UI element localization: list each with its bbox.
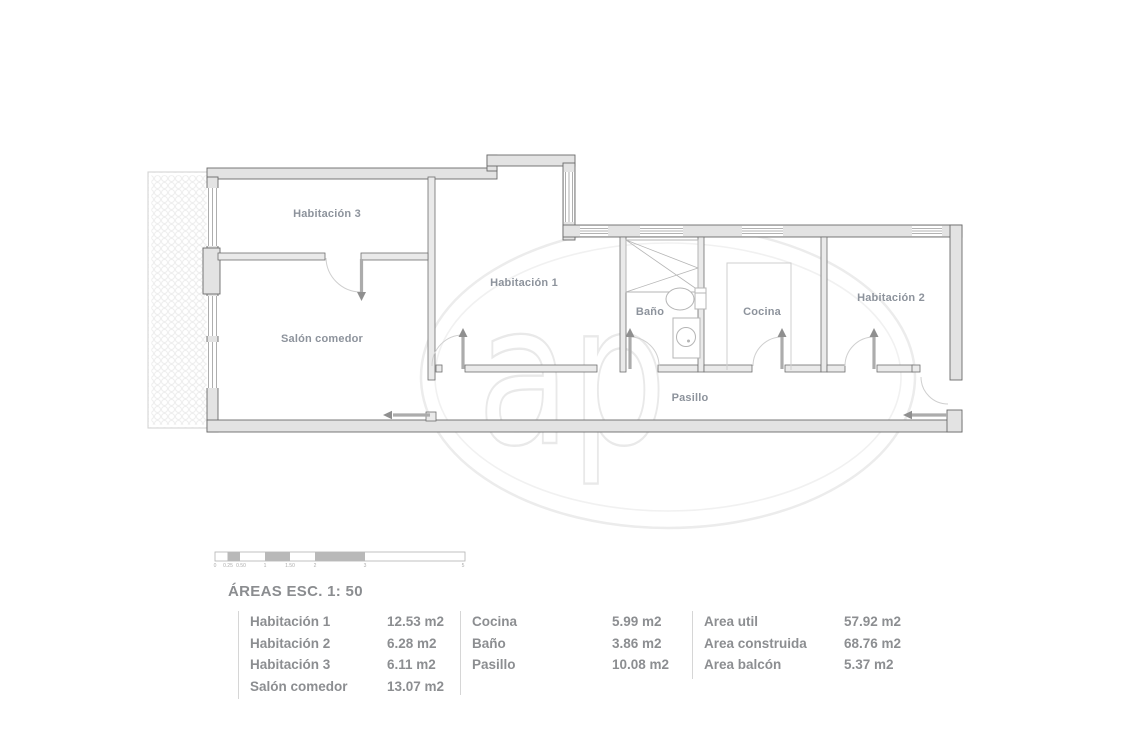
- area-name: Pasillo: [472, 657, 612, 672]
- area-name: Area construida: [704, 636, 844, 651]
- scale-tick: 0: [214, 563, 217, 569]
- room-label-salon-comedor: Salón comedor: [281, 333, 363, 345]
- scale-bar: [215, 552, 465, 561]
- areas-column-totals: Area util 57.92 m2 Area construida 68.76…: [692, 611, 901, 679]
- balcony-hatch: [148, 172, 210, 428]
- area-value: 3.86 m2: [612, 636, 662, 651]
- area-value: 12.53 m2: [387, 614, 444, 629]
- areas-column-rooms: Habitación 1 12.53 m2 Habitación 2 6.28 …: [238, 611, 444, 699]
- area-value: 6.11 m2: [387, 657, 436, 672]
- room-label-cocina: Cocina: [743, 306, 781, 318]
- room-label-habitacion-3: Habitación 3: [293, 208, 361, 220]
- room-label-bano: Baño: [636, 306, 664, 318]
- area-row: Salón comedor 13.07 m2: [250, 676, 444, 698]
- scale-tick: 1: [264, 563, 267, 569]
- room-label-pasillo: Pasillo: [672, 392, 709, 404]
- area-name: Area balcón: [704, 657, 844, 672]
- area-name: Habitación 3: [250, 657, 387, 672]
- area-row: Area construida 68.76 m2: [704, 633, 901, 655]
- area-name: Habitación 2: [250, 636, 387, 651]
- area-value: 5.37 m2: [844, 657, 894, 672]
- scale-tick: 0.50: [236, 563, 246, 569]
- area-row: Cocina 5.99 m2: [472, 611, 669, 633]
- scale-tick: 3: [364, 563, 367, 569]
- room-label-habitacion-2: Habitación 2: [857, 292, 925, 304]
- area-value: 68.76 m2: [844, 636, 901, 651]
- areas-title: ÁREAS ESC. 1: 50: [228, 583, 363, 600]
- area-value: 6.28 m2: [387, 636, 437, 651]
- area-name: Habitación 1: [250, 614, 387, 629]
- areas-column-services: Cocina 5.99 m2 Baño 3.86 m2 Pasillo 10.0…: [460, 611, 669, 695]
- area-row: Pasillo 10.08 m2: [472, 654, 669, 676]
- area-row: Baño 3.86 m2: [472, 633, 669, 655]
- scale-tick: 1.50: [285, 563, 295, 569]
- area-row: Habitación 1 12.53 m2: [250, 611, 444, 633]
- scale-tick: 0.25: [223, 563, 233, 569]
- area-name: Baño: [472, 636, 612, 651]
- floorplan-page: ap: [0, 0, 1145, 746]
- area-value: 57.92 m2: [844, 614, 901, 629]
- area-row: Area util 57.92 m2: [704, 611, 901, 633]
- area-name: Area util: [704, 614, 844, 629]
- area-row: Habitación 3 6.11 m2: [250, 654, 444, 676]
- scale-tick: 2: [314, 563, 317, 569]
- area-row: Area balcón 5.37 m2: [704, 654, 901, 676]
- watermark-letters: ap: [477, 263, 667, 489]
- scale-tick: 5: [462, 563, 465, 569]
- area-row: Habitación 2 6.28 m2: [250, 633, 444, 655]
- area-name: Cocina: [472, 614, 612, 629]
- area-value: 10.08 m2: [612, 657, 669, 672]
- area-value: 13.07 m2: [387, 679, 444, 694]
- area-name: Salón comedor: [250, 679, 387, 694]
- toilet-icon: [666, 288, 694, 310]
- area-value: 5.99 m2: [612, 614, 662, 629]
- brand-watermark: ap: [421, 226, 915, 528]
- room-label-habitacion-1: Habitación 1: [490, 277, 558, 289]
